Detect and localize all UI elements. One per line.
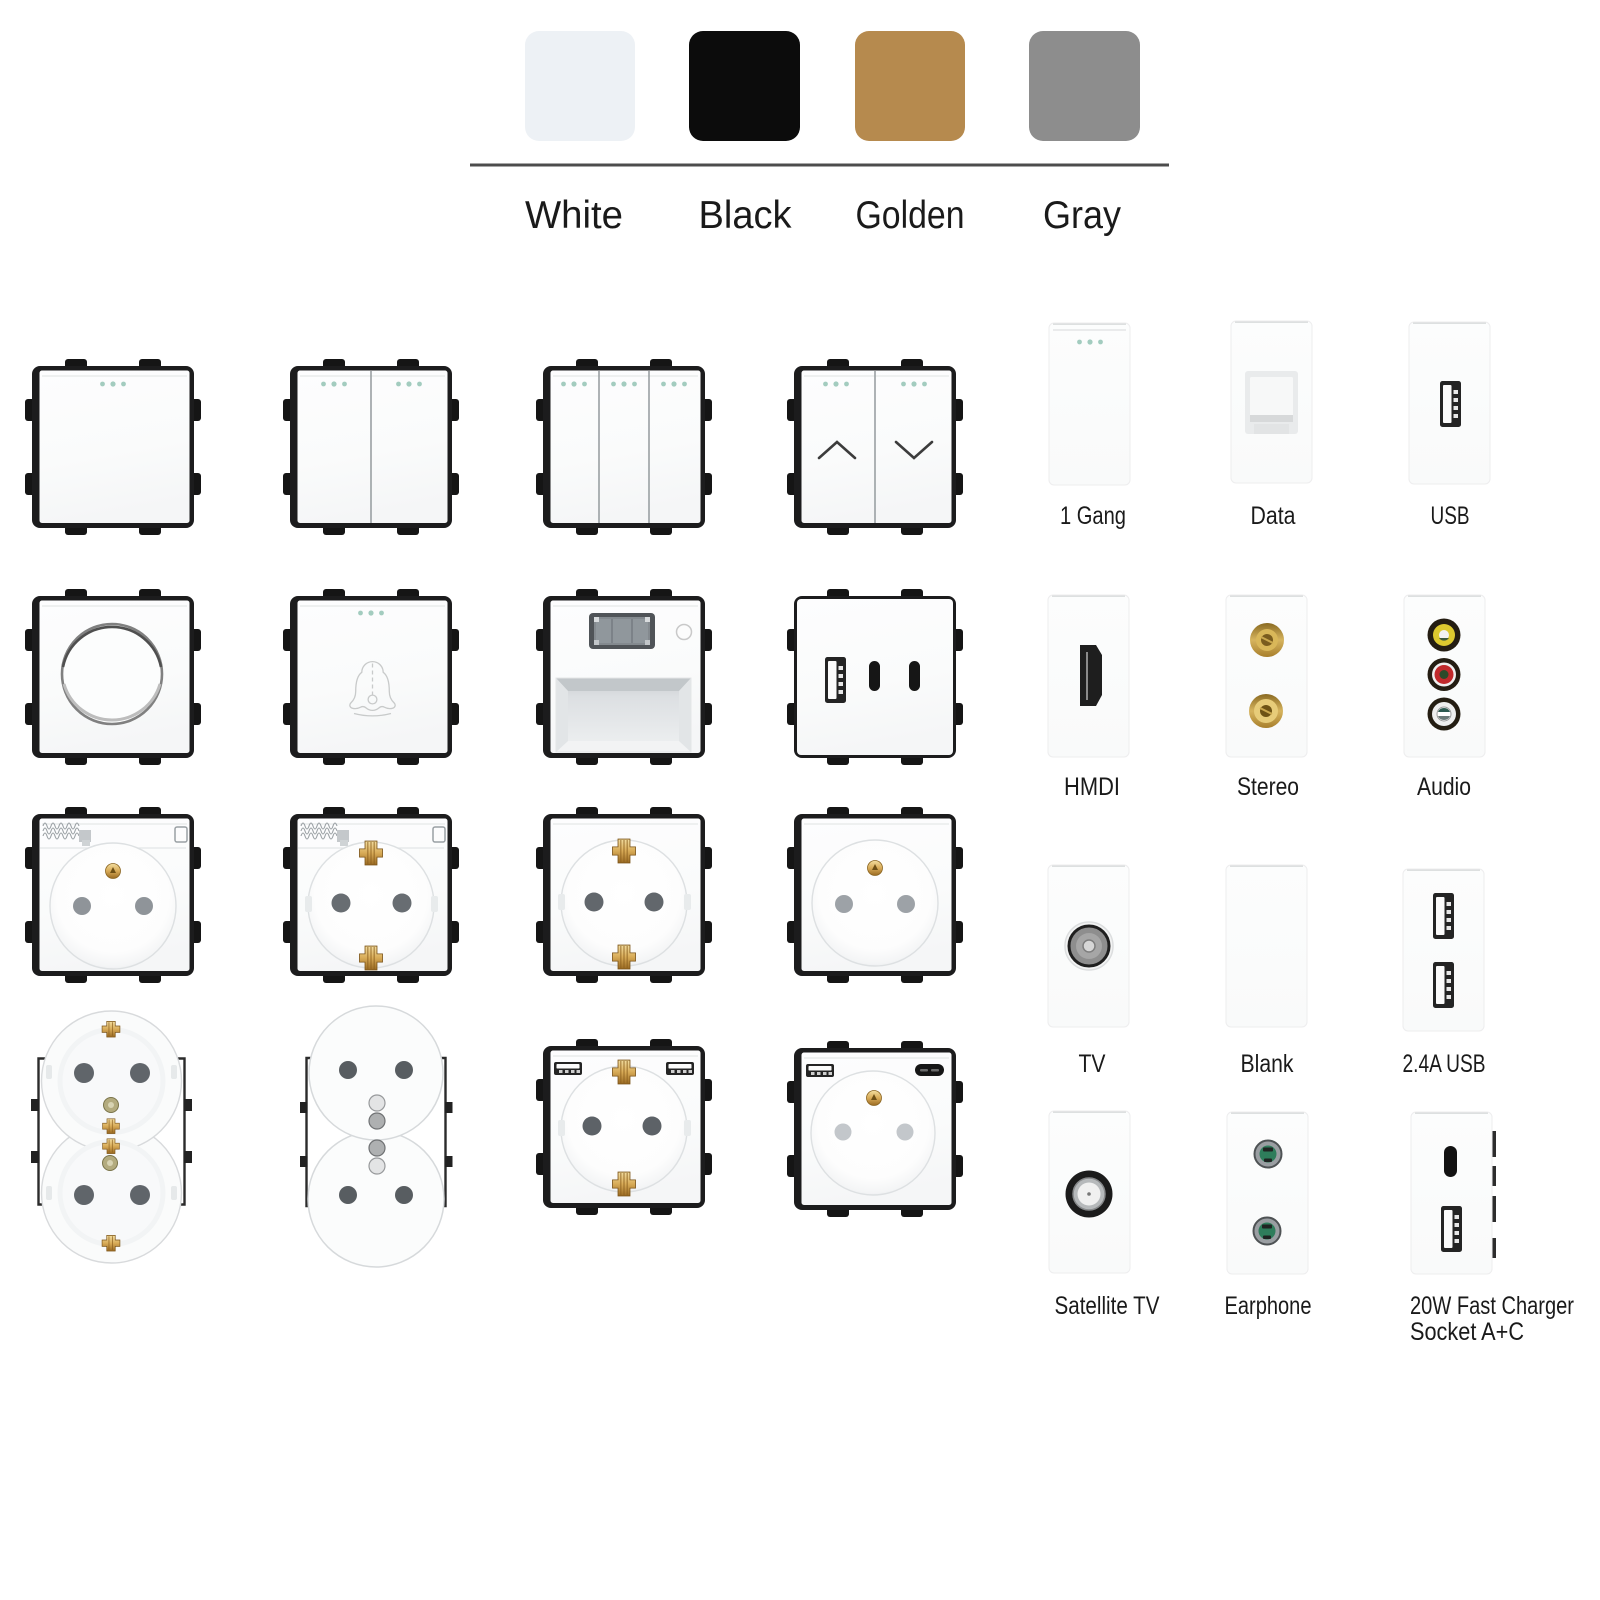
svg-text:20W Fast Charger: 20W Fast Charger (1410, 1292, 1574, 1320)
svg-text:Blank: Blank (1241, 1050, 1294, 1078)
svg-text:Black: Black (699, 194, 792, 237)
svg-text:USB: USB (1431, 502, 1470, 530)
svg-text:Gray: Gray (1043, 194, 1121, 237)
svg-text:Golden: Golden (856, 194, 965, 237)
svg-text:TV: TV (1079, 1050, 1106, 1078)
svg-text:Earphone: Earphone (1225, 1292, 1312, 1320)
svg-text:White: White (525, 194, 623, 237)
svg-text:Audio: Audio (1417, 773, 1471, 801)
svg-text:HMDI: HMDI (1064, 773, 1120, 801)
svg-text:Satellite TV: Satellite TV (1055, 1292, 1160, 1320)
svg-text:2.4A USB: 2.4A USB (1403, 1050, 1486, 1078)
svg-text:Socket A+C: Socket A+C (1410, 1318, 1524, 1346)
svg-text:Stereo: Stereo (1237, 773, 1299, 801)
svg-text:Data: Data (1251, 502, 1296, 530)
svg-text:1 Gang: 1 Gang (1060, 502, 1126, 530)
